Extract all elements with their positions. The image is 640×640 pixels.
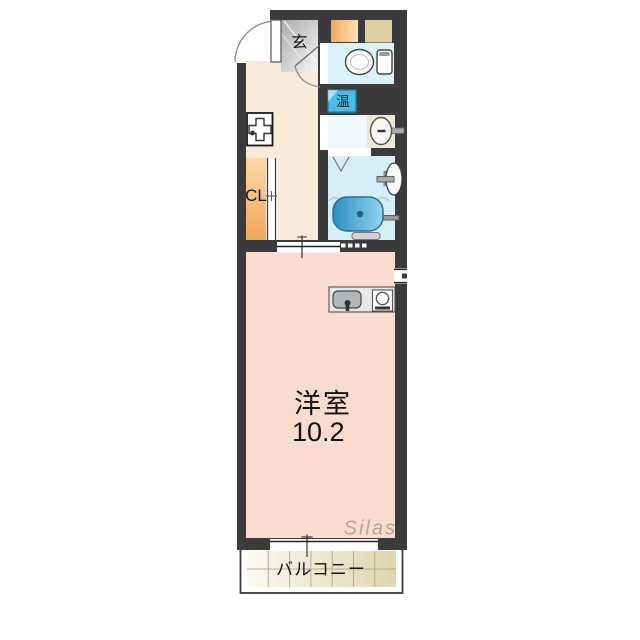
room-name-label: 洋室 [294, 389, 352, 419]
floorplan-page: 温 [0, 0, 640, 640]
floorplan-svg: 温 [0, 0, 640, 640]
toilet-door-gap [320, 43, 328, 84]
balcony-label: バルコニー [276, 560, 366, 579]
room-size-label: 10.2 [292, 417, 345, 447]
closet-label: CL [245, 186, 267, 205]
entrance-door [235, 20, 281, 62]
water-heater-label: 温 [336, 94, 350, 109]
washroom-floor [328, 115, 367, 150]
storage-box [331, 20, 358, 42]
bathroom-door-gap [328, 148, 371, 156]
entrance-label: 玄 [291, 34, 307, 52]
tub-drain [357, 211, 363, 217]
shower-handle [377, 177, 394, 183]
shaft-box [365, 20, 392, 43]
kitchen [329, 287, 395, 312]
washroom-door-gap [320, 115, 328, 150]
bath-mat [352, 233, 380, 240]
closet-sliding-door [266, 158, 277, 240]
washing-machine-icon [247, 113, 273, 146]
side-window [394, 268, 407, 284]
entrance-door-arc [235, 21, 276, 62]
entrance-door-leaf [271, 20, 281, 62]
toilet-icon [346, 50, 393, 75]
watermark-text: Silas [344, 518, 397, 540]
water-heater: 温 [328, 90, 356, 112]
stove-grill [375, 307, 390, 310]
